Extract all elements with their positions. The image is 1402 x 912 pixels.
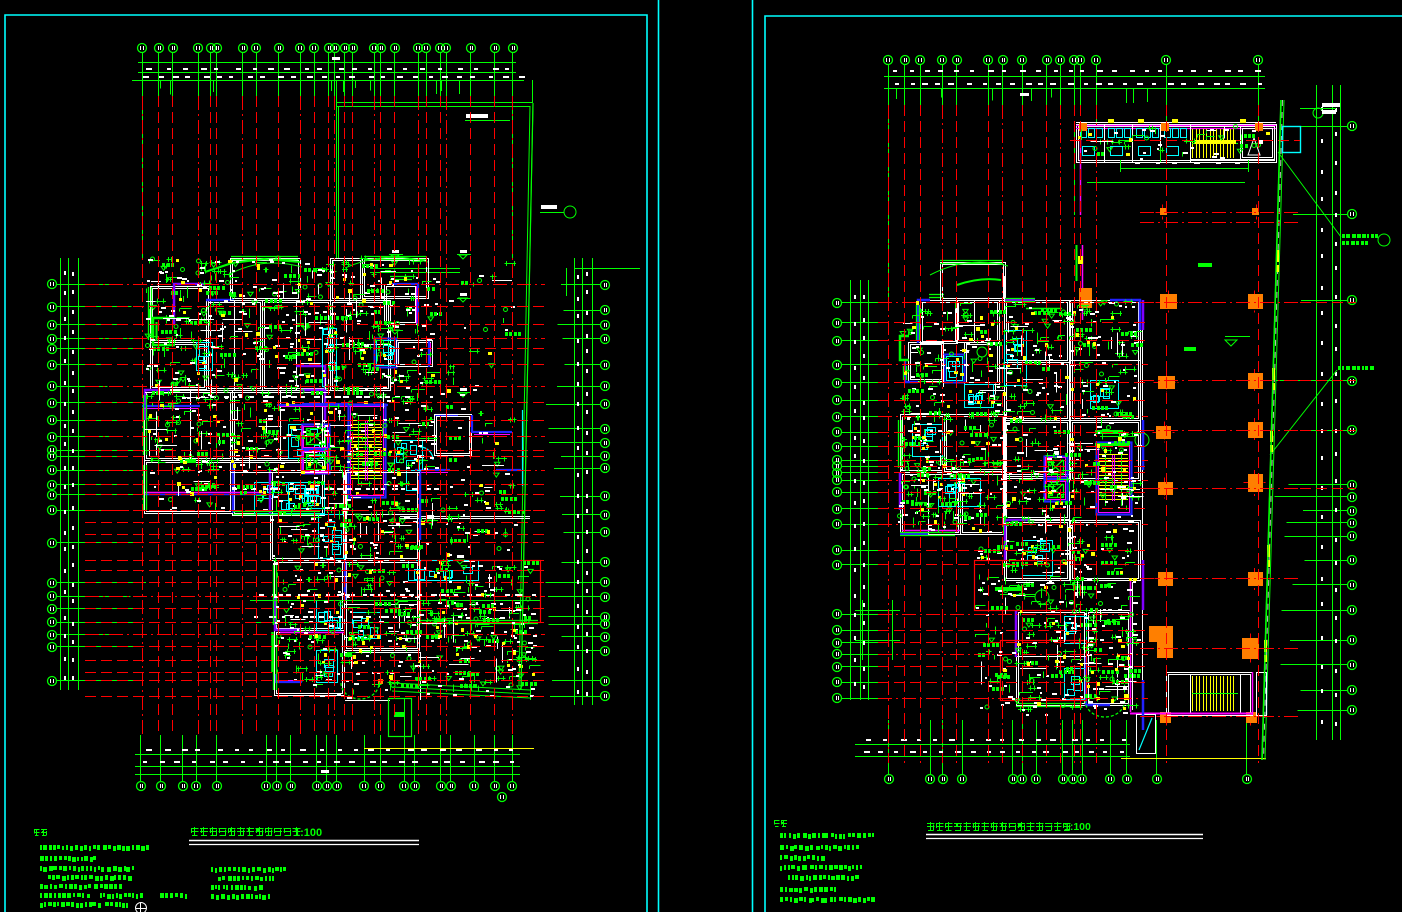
svg-text:1:100: 1:100: [294, 827, 322, 839]
svg-text:1:100: 1:100: [1064, 821, 1091, 833]
